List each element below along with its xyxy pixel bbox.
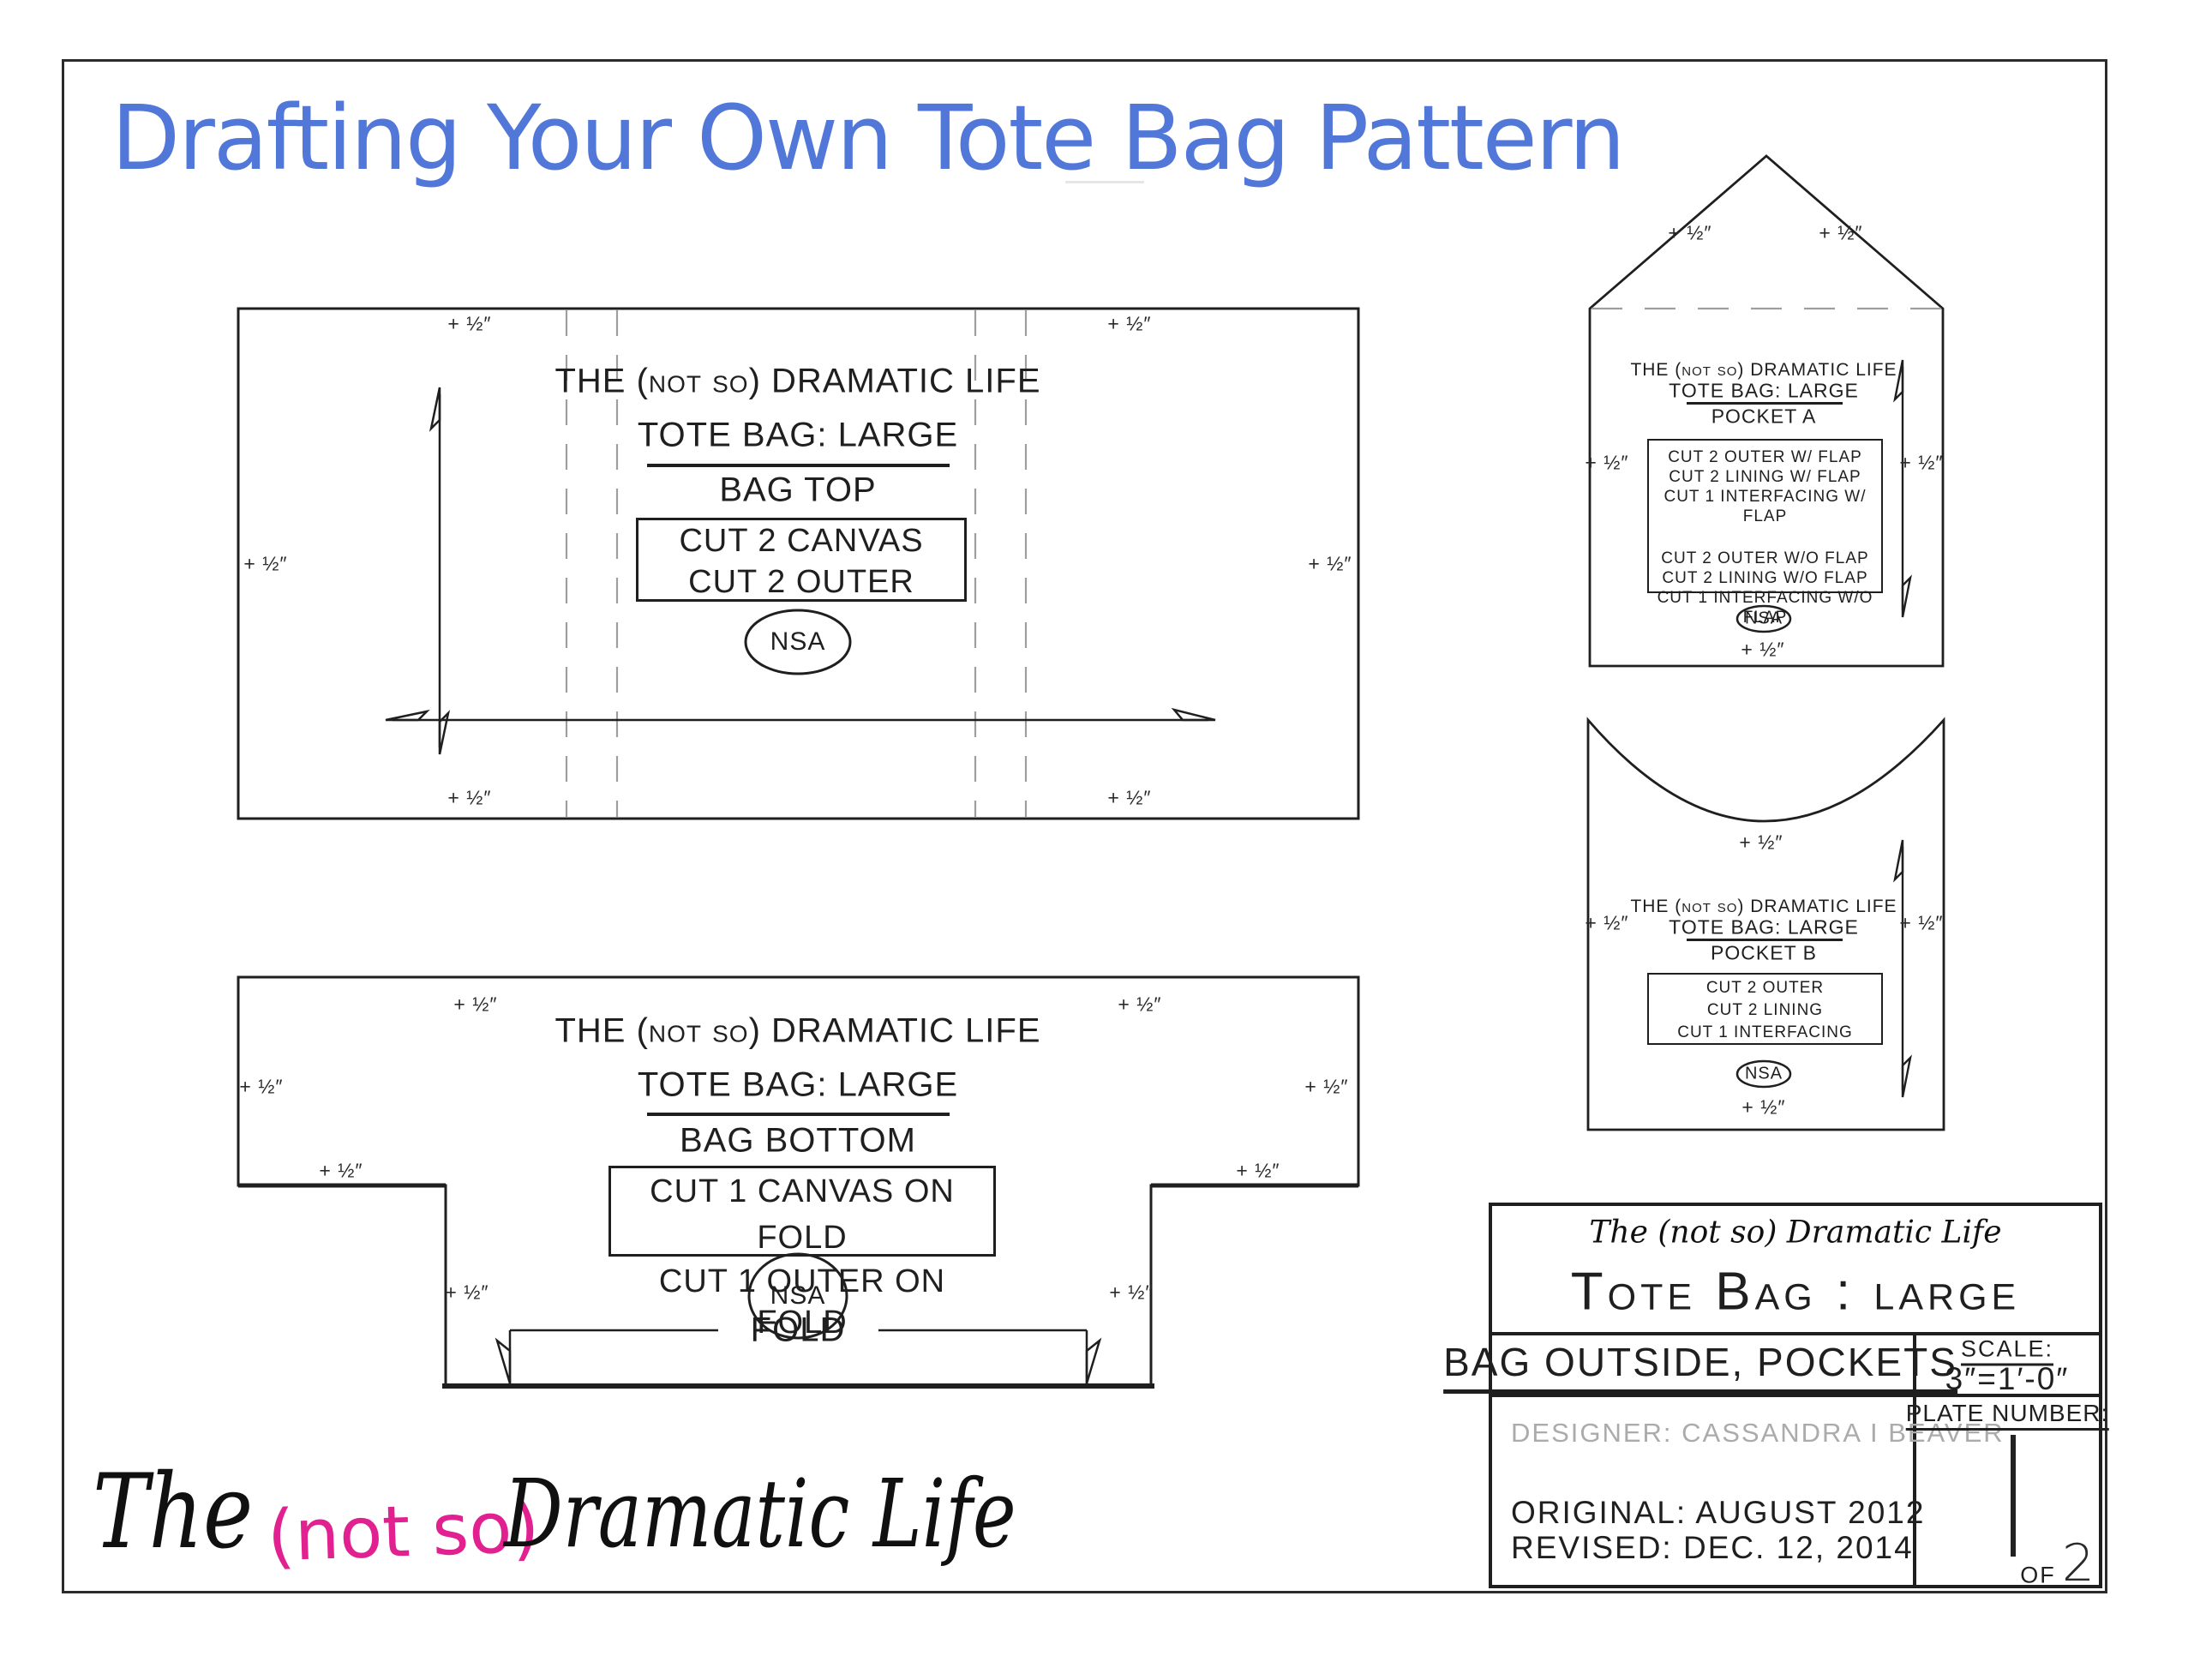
pocket-a-cut-box: CUT 2 OUTER W/ FLAP CUT 2 LINING W/ FLAP…	[1647, 439, 1883, 593]
pocket-b-nsa-label: NSA	[1745, 1065, 1783, 1084]
title-block-original-date: ORIGINAL: AUGUST 2012	[1511, 1495, 1925, 1531]
seam-allowance-marker: + ½″	[1899, 452, 1943, 475]
bag-bottom-rule	[647, 1113, 950, 1116]
bag-top-product: TOTE BAG: LARGE	[638, 417, 958, 455]
cut-line: CUT 2 LINING W/ FLAP	[1649, 467, 1881, 487]
title-block-product: Tote Bag : large	[1571, 1262, 2020, 1323]
cut-line: CUT 2 OUTER W/ FLAP	[1649, 447, 1881, 467]
seam-allowance-marker: + ½″	[1899, 912, 1943, 935]
bag-bottom-name: BAG BOTTOM	[680, 1122, 916, 1161]
seam-allowance-marker: + ½″	[1107, 313, 1151, 336]
seam-allowance-marker: + ½″	[1741, 639, 1784, 662]
cut-line: CUT 1 CANVAS ON FOLD	[611, 1168, 993, 1261]
title-block-revised-date: REVISED: DEC. 12, 2014	[1511, 1530, 1914, 1566]
seam-allowance-marker: + ½″	[1585, 452, 1628, 475]
bag-bottom-brand: THE (not so) DRAMATIC LIFE	[554, 1012, 1040, 1051]
pocket-a-grainline	[1895, 360, 1910, 617]
pocket-b-brand: THE (not so) DRAMATIC LIFE	[1630, 897, 1897, 917]
cut-line: CUT 2 CANVAS	[638, 520, 964, 562]
plate-total-value: 2	[2062, 1533, 2095, 1593]
cut-line: CUT 2 OUTER W/O FLAP	[1649, 549, 1881, 568]
pocket-a-name: POCKET A	[1711, 405, 1817, 429]
cut-line: CUT 1 INTERFACING	[1649, 1022, 1881, 1044]
seam-allowance-marker: + ½″	[1585, 912, 1628, 935]
logo-the: The	[93, 1453, 253, 1572]
seam-allowance-marker: + ½″	[1107, 787, 1151, 810]
title-block-scale-value: 3″=1′-0″	[1945, 1361, 2070, 1397]
bag-top-cut-box: CUT 2 CANVAS CUT 2 OUTER	[636, 518, 967, 602]
bag-bottom-product: TOTE BAG: LARGE	[638, 1066, 958, 1105]
title-block-scale-label: SCALE:	[1961, 1336, 2053, 1363]
pocket-b-name: POCKET B	[1711, 942, 1817, 965]
pattern-sheet: Drafting Your Own Tote Bag Pattern	[0, 0, 2194, 1680]
pocket-b-product: TOTE BAG: LARGE	[1669, 916, 1859, 939]
bag-bottom-cut-box: CUT 1 CANVAS ON FOLD CUT 1 OUTER ON FOLD	[608, 1166, 996, 1257]
title-block-brand-script: The (not so) Dramatic Life	[1589, 1215, 2001, 1251]
seam-allowance-marker: + ½″	[453, 993, 497, 1017]
bag-top-nsa-label: NSA	[770, 627, 826, 657]
pocket-a-nsa-label: NSA	[1745, 609, 1783, 629]
seam-allowance-marker: + ½″	[239, 1076, 283, 1099]
seam-allowance-marker: + ½″	[243, 553, 287, 576]
bag-top-brand: THE (not so) DRAMATIC LIFE	[554, 363, 1040, 401]
pocket-a-brand: THE (not so) DRAMATIC LIFE	[1630, 360, 1897, 381]
seam-allowance-marker: + ½″	[1668, 222, 1711, 245]
bag-top-name: BAG TOP	[719, 471, 876, 510]
bag-top-rule	[647, 464, 950, 467]
pocket-b-grainline	[1895, 840, 1910, 1097]
cut-line: CUT 2 OUTER	[1649, 977, 1881, 999]
title-block-divider-h1	[1489, 1332, 2102, 1335]
plate-of-label: OF	[2020, 1563, 2056, 1589]
title-block-plate-label: PLATE NUMBER:	[1906, 1400, 2109, 1427]
seam-allowance-marker: + ½″	[1118, 993, 1161, 1017]
seam-allowance-marker: + ½″	[447, 787, 491, 810]
logo-dramatic-life: Dramatic Life	[504, 1459, 1016, 1569]
seam-allowance-marker: + ½″	[1741, 1096, 1785, 1119]
seam-allowance-marker: + ½″	[1819, 222, 1862, 245]
pocket-b-cut-box: CUT 2 OUTER CUT 2 LINING CUT 1 INTERFACI…	[1647, 973, 1883, 1045]
fold-label: FOLD	[751, 1311, 846, 1350]
plate-number-value: 1	[2011, 1435, 2016, 1557]
seam-allowance-marker: + ½″	[447, 313, 491, 336]
title-block-sheet-name: BAG OUTSIDE, POCKETS	[1443, 1339, 1957, 1385]
seam-allowance-marker: + ½″	[1304, 1076, 1348, 1099]
seam-allowance-marker: + ½″	[1236, 1160, 1280, 1183]
cut-line: CUT 2 LINING	[1649, 999, 1881, 1022]
cut-line: CUT 2 OUTER	[638, 562, 964, 602]
seam-allowance-marker: + ½″	[1739, 831, 1783, 855]
logo-not-so: (not so)	[266, 1486, 540, 1577]
bag-bottom-nsa-label: NSA	[770, 1281, 826, 1311]
cut-line: CUT 2 LINING W/O FLAP	[1649, 568, 1881, 588]
seam-allowance-marker: + ½″	[1109, 1281, 1153, 1305]
bag-top-grainline-horizontal	[386, 710, 1215, 720]
pocket-a-product: TOTE BAG: LARGE	[1669, 380, 1859, 403]
seam-allowance-marker: + ½″	[1308, 553, 1352, 576]
seam-allowance-marker: + ½″	[319, 1160, 363, 1183]
cut-line: CUT 1 INTERFACING W/ FLAP	[1649, 487, 1881, 526]
seam-allowance-marker: + ½″	[445, 1281, 489, 1305]
bag-top-grainline-vertical	[431, 387, 448, 754]
